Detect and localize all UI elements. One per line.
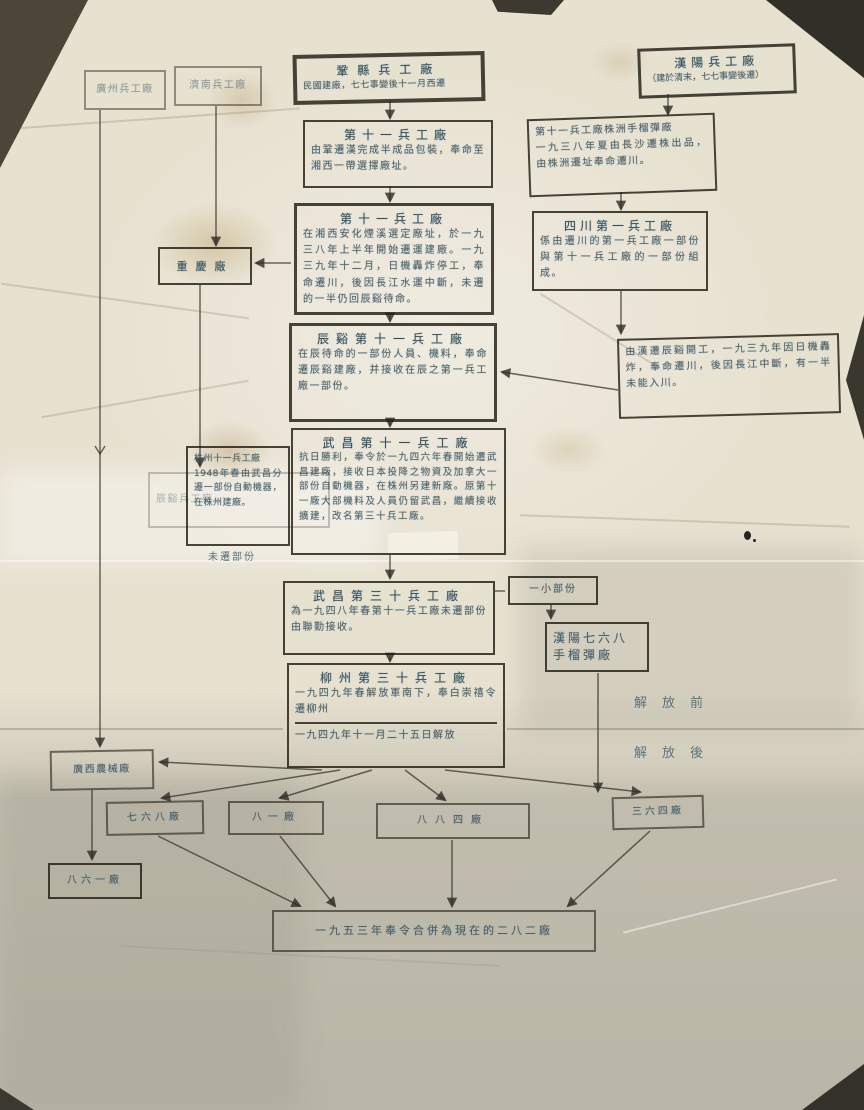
label-before-liberation: 解放前 [634,692,718,711]
node-sichuan-first-arsenal: 四川第一兵工廠 係由遷川的第一兵工廠一部份與第十一兵工廠的一部份組成。 [532,211,708,291]
node-jinan-arsenal: 濟南兵工廠 [174,66,262,106]
node-factory-364: 三六四廠 [612,795,705,830]
node-note-relocation: 由漢遷辰谿開工，一九三九年因日機轟炸，奉命遷川，後因長江中斷，有一半未能入川。 [617,333,841,419]
node-chenxi-11th-arsenal: 辰谿第十一兵工廠 在辰待命的一部份人員、機料，奉命遷辰谿建廠，并接收在辰之第一兵… [289,323,497,422]
node-title: 一九五三年奉令合併為現在的二八二廠 [280,922,588,940]
node-title: 廣州兵工廠 [92,82,158,98]
node-factory-861: 八六一廠 [48,863,142,899]
node-wuchang-30th-arsenal: 武昌第三十兵工廠 為一九四八年春第十一兵工廠未遷部份由聯勤接收。 [283,581,495,655]
node-title: 第十一兵工廠 [311,126,485,143]
node-title: 武昌第十一兵工廠 [299,434,498,451]
node-title: 八六一廠 [56,873,134,889]
node-chongqing-plant: 重慶廠 [158,247,252,285]
node-hanyang-arsenal: 漢陽兵工廠 （建於清末，七七事變後遷） [637,43,797,98]
node-body: 一九三八年夏由長沙遷株出品，由株洲遷址奉命遷川。 [535,135,708,173]
node-11th-arsenal-yanxi: 第十一兵工廠 在湘西安化煙溪選定廠址，於一九三八年上半年開始遷運建廠。一九三九年… [294,203,494,315]
node-768-grenade-plant: 漢陽七六八手榴彈廠 [545,622,649,672]
label-unmoved-part: 未遷部份 [208,548,256,563]
node-guangzhou-arsenal: 廣州兵工廠 [84,70,166,110]
node-11th-arsenal-han: 第十一兵工廠 由鞏遷漢完成半成品包裝，奉命至湘西一帶選擇廠址。 [303,120,493,188]
node-merge-1953-282: 一九五三年奉令合併為現在的二八二廠 [272,910,596,952]
node-subtitle: 民國建廠，七七事變後十一月西遷 [303,76,475,94]
node-small-part: 一小部份 [508,576,598,605]
node-zhuzhou-11th-arsenal: 株州十一兵工廠 1948年春由武昌分遷一部份自動機器，在株州建廠。 [186,446,290,546]
node-body: 由漢遷辰谿開工，一九三九年因日機轟炸，奉命遷川，後因長江中斷，有一半未能入川。 [625,339,832,393]
node-title: 三六四廠 [620,803,696,821]
node-gongxian-arsenal: 鞏縣兵工廠 民國建廠，七七事變後十一月西遷 [292,51,485,105]
node-title: 重慶廠 [166,258,244,274]
node-factory-81: 八一廠 [228,801,324,835]
node-body: 為一九四八年春第十一兵工廠未遷部份由聯勤接收。 [291,604,487,636]
node-guangxi-farm-machinery: 廣西農械廠 [50,749,155,791]
node-title: 武昌第三十兵工廠 [291,587,487,604]
node-title: 漢陽七六八手榴彈廠 [553,630,641,664]
speck [744,531,751,540]
node-title: 一小部份 [516,582,590,598]
node-title: 濟南兵工廠 [182,78,254,94]
node-factory-768: 七六八廠 [106,800,205,836]
node-body: 由鞏遷漢完成半成品包裝，奉命至湘西一帶選擇廠址。 [311,143,485,175]
node-title: 株州十一兵工廠 [194,452,282,467]
node-title: 廣西農械廠 [58,761,146,779]
node-liberation-date: 一九四九年十一月二十五日解放 [295,722,497,744]
label-after-liberation: 解放後 [634,742,718,761]
crease-line [0,560,864,562]
node-body: 係由遷川的第一兵工廠一部份與第十一兵工廠的一部份組成。 [540,234,700,283]
node-body: 一九四九年春解放軍南下，奉白崇禧令遷柳州 [295,686,497,718]
photographed-document: 廣州兵工廠 濟南兵工廠 鞏縣兵工廠 民國建廠，七七事變後十一月西遷 漢陽兵工廠 … [0,0,864,1110]
node-title: 八八四廠 [384,813,522,829]
node-title: 四川第一兵工廠 [540,217,700,234]
speck [753,539,756,542]
node-body: 在辰待命的一部份人員、機料，奉命遷辰谿建廠，并接收在辰之第一兵工廠一部份。 [298,347,488,396]
node-title: 辰谿第十一兵工廠 [298,330,488,347]
node-body: 在湘西安化煙溪選定廠址，於一九三八年上半年開始遷運建廠。一九三九年十二月，日機轟… [303,227,485,308]
node-title: 柳州第三十兵工廠 [295,669,497,686]
node-title: 八一廠 [236,810,316,826]
node-title: 七六八廠 [114,809,196,827]
node-zhuzhou-grenade-plant: 第十一兵工廠株洲手榴彈廠 一九三八年夏由長沙遷株出品，由株洲遷址奉命遷川。 [527,113,718,198]
node-factory-884: 八八四廠 [376,803,530,839]
node-title: 第十一兵工廠 [303,210,485,227]
node-body: 1948年春由武昌分遷一部份自動機器，在株州建廠。 [194,467,282,511]
node-liuzhou-30th-arsenal: 柳州第三十兵工廠 一九四九年春解放軍南下，奉白崇禧令遷柳州 一九四九年十一月二十… [287,663,505,768]
